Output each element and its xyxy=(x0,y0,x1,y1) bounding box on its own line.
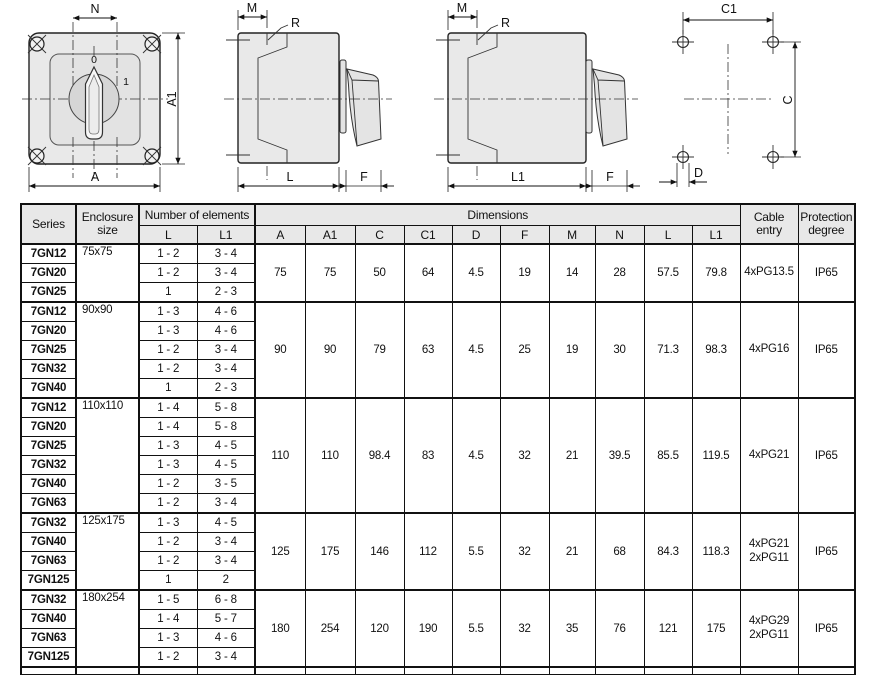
cell-elements-l1: 4 - 6 xyxy=(197,302,255,322)
cell-dim-d: 5.5 xyxy=(452,590,500,667)
cell-protection-degree: IP65 xyxy=(798,244,855,302)
radius-label-r: R xyxy=(501,16,510,30)
cell-dim-c1: 64 xyxy=(404,244,452,302)
cell-elements-l: 1 - 5 xyxy=(139,590,197,610)
cell-elements-l: 1 - 4 xyxy=(139,398,197,418)
cell-elements-l: 1 - 2 xyxy=(139,244,197,264)
cell-dim-a: 90 xyxy=(255,302,305,398)
col-header-dim-m: M xyxy=(549,226,595,245)
cell-series: 7GN63 xyxy=(21,494,76,514)
col-header-dim-c: C xyxy=(355,226,404,245)
datasheet-page: 0 1 N A1 A M R L xyxy=(0,0,874,675)
cell-elements-l: 1 - 3 xyxy=(139,302,197,322)
col-header-dim-c1: C1 xyxy=(404,226,452,245)
cell-dim-a: 125 xyxy=(255,513,305,590)
cell-series: 7GN32 xyxy=(21,456,76,475)
cell-elements-l1: 2 xyxy=(197,571,255,591)
screw-icon xyxy=(28,35,46,53)
cell-dim-m: 14 xyxy=(549,244,595,302)
dim-label-d: D xyxy=(694,166,703,180)
cell-enclosure-size: 75x75 xyxy=(76,244,139,302)
cell-dim-l1: 119.5 xyxy=(692,398,740,513)
cell-cable-entry: 4xPG21 xyxy=(740,398,798,513)
side-view-l1-drawing: M R L1 F xyxy=(434,1,640,192)
dim-label-a: A xyxy=(91,170,100,184)
cell-dim-c: 50 xyxy=(355,244,404,302)
cell-series: 7GN32 xyxy=(21,360,76,379)
dim-label-m: M xyxy=(457,1,467,15)
cell-protection-degree: IP65 xyxy=(798,513,855,590)
table-cutoff-row xyxy=(21,667,855,675)
col-header-series: Series xyxy=(21,204,76,244)
cell-dim-f: 25 xyxy=(500,302,549,398)
cell-series: 7GN25 xyxy=(21,283,76,303)
cell-dim-d: 4.5 xyxy=(452,398,500,513)
cell-dim-f: 32 xyxy=(500,590,549,667)
cell-elements-l: 1 - 2 xyxy=(139,552,197,571)
cell-dim-a1: 254 xyxy=(305,590,355,667)
cell-dim-n: 39.5 xyxy=(595,398,644,513)
dim-label-n: N xyxy=(90,2,99,16)
cell-elements-l1: 3 - 5 xyxy=(197,475,255,494)
dim-label-l1: L1 xyxy=(511,170,525,184)
cell-dim-a1: 175 xyxy=(305,513,355,590)
cell-dim-l1: 98.3 xyxy=(692,302,740,398)
dim-label-c: C xyxy=(781,95,795,104)
cell-series: 7GN32 xyxy=(21,513,76,533)
dimensions-table: Series Enclosure size Number of elements… xyxy=(20,203,856,675)
cell-dim-l: 84.3 xyxy=(644,513,692,590)
cell-dim-a: 180 xyxy=(255,590,305,667)
cell-elements-l1: 4 - 5 xyxy=(197,437,255,456)
cell-cable-entry: 4xPG16 xyxy=(740,302,798,398)
table-row: 7GN1275x751 - 23 - 4757550644.519142857.… xyxy=(21,244,855,264)
cell-elements-l1: 5 - 8 xyxy=(197,418,255,437)
cell-dim-a1: 90 xyxy=(305,302,355,398)
cell-elements-l: 1 - 2 xyxy=(139,360,197,379)
cell-dim-a: 110 xyxy=(255,398,305,513)
col-header-dim-a: A xyxy=(255,226,305,245)
cell-series: 7GN25 xyxy=(21,341,76,360)
cell-cutoff xyxy=(740,667,798,675)
cell-dim-n: 68 xyxy=(595,513,644,590)
cell-cutoff xyxy=(76,667,139,675)
cell-dim-n: 30 xyxy=(595,302,644,398)
dim-label-l: L xyxy=(287,170,294,184)
col-header-dim-d: D xyxy=(452,226,500,245)
cell-elements-l1: 3 - 4 xyxy=(197,552,255,571)
table-header: Series Enclosure size Number of elements… xyxy=(21,204,855,244)
cell-dim-d: 4.5 xyxy=(452,302,500,398)
cell-series: 7GN20 xyxy=(21,418,76,437)
technical-drawings: 0 1 N A1 A M R L xyxy=(0,0,874,203)
mounting-holes-drawing: C1 C D xyxy=(659,2,801,187)
col-header-dim-n: N xyxy=(595,226,644,245)
cell-elements-l1: 2 - 3 xyxy=(197,379,255,399)
radius-label-r: R xyxy=(291,16,300,30)
cell-elements-l1: 3 - 4 xyxy=(197,360,255,379)
cell-protection-degree: IP65 xyxy=(798,590,855,667)
cell-series: 7GN125 xyxy=(21,571,76,591)
cell-enclosure-size: 90x90 xyxy=(76,302,139,398)
cell-dim-m: 21 xyxy=(549,398,595,513)
cell-dim-l1: 118.3 xyxy=(692,513,740,590)
cell-dim-c1: 63 xyxy=(404,302,452,398)
cell-dim-l: 121 xyxy=(644,590,692,667)
cell-enclosure-size: 125x175 xyxy=(76,513,139,590)
side-view-l-drawing: M R L F xyxy=(224,1,394,192)
dim-label-m: M xyxy=(247,1,257,15)
screw-icon xyxy=(28,147,46,165)
cell-dim-n: 76 xyxy=(595,590,644,667)
cell-elements-l: 1 - 2 xyxy=(139,648,197,668)
dim-label-f: F xyxy=(606,170,614,184)
cell-dim-c: 98.4 xyxy=(355,398,404,513)
cell-elements-l1: 3 - 4 xyxy=(197,533,255,552)
cell-elements-l: 1 - 3 xyxy=(139,437,197,456)
col-header-dim-l1: L1 xyxy=(692,226,740,245)
cell-cable-entry: 4xPG29 2xPG11 xyxy=(740,590,798,667)
knob-position-1-label: 1 xyxy=(123,76,129,88)
cell-series: 7GN32 xyxy=(21,590,76,610)
cell-cutoff xyxy=(355,667,404,675)
cell-elements-l1: 4 - 6 xyxy=(197,322,255,341)
cell-enclosure-size: 110x110 xyxy=(76,398,139,513)
cell-series: 7GN12 xyxy=(21,302,76,322)
cell-enclosure-size: 180x254 xyxy=(76,590,139,667)
cell-cutoff xyxy=(595,667,644,675)
cell-series: 7GN25 xyxy=(21,437,76,456)
cell-cutoff xyxy=(798,667,855,675)
screw-icon xyxy=(143,147,161,165)
cell-elements-l: 1 xyxy=(139,379,197,399)
cell-elements-l1: 5 - 8 xyxy=(197,398,255,418)
cell-dim-l1: 79.8 xyxy=(692,244,740,302)
col-header-dim-f: F xyxy=(500,226,549,245)
cell-cable-entry: 4xPG13.5 xyxy=(740,244,798,302)
cell-dim-m: 19 xyxy=(549,302,595,398)
cell-elements-l1: 3 - 4 xyxy=(197,648,255,668)
cell-series: 7GN40 xyxy=(21,533,76,552)
cell-elements-l1: 5 - 7 xyxy=(197,610,255,629)
cell-dim-a1: 75 xyxy=(305,244,355,302)
cell-dim-m: 21 xyxy=(549,513,595,590)
cell-elements-l: 1 - 2 xyxy=(139,341,197,360)
cell-elements-l1: 4 - 6 xyxy=(197,629,255,648)
cell-dim-m: 35 xyxy=(549,590,595,667)
cell-elements-l1: 3 - 4 xyxy=(197,494,255,514)
cell-elements-l1: 3 - 4 xyxy=(197,244,255,264)
cell-elements-l: 1 - 2 xyxy=(139,475,197,494)
cell-dim-c: 146 xyxy=(355,513,404,590)
cell-dim-c1: 83 xyxy=(404,398,452,513)
cell-dim-a: 75 xyxy=(255,244,305,302)
cell-elements-l: 1 - 2 xyxy=(139,494,197,514)
col-header-number-of-elements: Number of elements xyxy=(139,204,255,226)
col-header-l: L xyxy=(139,226,197,245)
cell-elements-l: 1 - 4 xyxy=(139,418,197,437)
front-view-drawing: 0 1 N A1 A xyxy=(22,2,185,192)
cell-cutoff xyxy=(500,667,549,675)
col-header-protection-degree: Protection degree xyxy=(798,204,855,244)
cell-series: 7GN40 xyxy=(21,379,76,399)
cell-elements-l: 1 - 3 xyxy=(139,629,197,648)
knob-position-0-label: 0 xyxy=(91,54,97,66)
cell-elements-l: 1 - 3 xyxy=(139,322,197,341)
cell-dim-c: 79 xyxy=(355,302,404,398)
cell-dim-c1: 190 xyxy=(404,590,452,667)
cell-elements-l1: 6 - 8 xyxy=(197,590,255,610)
cell-protection-degree: IP65 xyxy=(798,302,855,398)
cell-elements-l: 1 - 3 xyxy=(139,456,197,475)
cell-dim-c1: 112 xyxy=(404,513,452,590)
cell-cutoff xyxy=(197,667,255,675)
cell-dim-f: 32 xyxy=(500,513,549,590)
cell-dim-d: 5.5 xyxy=(452,513,500,590)
cell-cutoff xyxy=(644,667,692,675)
cell-elements-l: 1 xyxy=(139,283,197,303)
table-row: 7GN32180x2541 - 56 - 81802541201905.5323… xyxy=(21,590,855,610)
cell-dim-l: 71.3 xyxy=(644,302,692,398)
cell-dim-f: 32 xyxy=(500,398,549,513)
cell-series: 7GN12 xyxy=(21,398,76,418)
cell-elements-l1: 4 - 5 xyxy=(197,513,255,533)
screw-icon xyxy=(143,35,161,53)
cell-elements-l: 1 - 2 xyxy=(139,533,197,552)
cell-elements-l1: 3 - 4 xyxy=(197,341,255,360)
cell-dim-l: 57.5 xyxy=(644,244,692,302)
col-header-dim-a1: A1 xyxy=(305,226,355,245)
cell-elements-l1: 3 - 4 xyxy=(197,264,255,283)
cell-cutoff xyxy=(139,667,197,675)
cell-series: 7GN63 xyxy=(21,552,76,571)
cell-dim-d: 4.5 xyxy=(452,244,500,302)
cell-cutoff xyxy=(21,667,76,675)
col-header-dim-l: L xyxy=(644,226,692,245)
cell-cutoff xyxy=(404,667,452,675)
cell-series: 7GN20 xyxy=(21,322,76,341)
dim-label-c1: C1 xyxy=(721,2,737,16)
table-row: 7GN12110x1101 - 45 - 811011098.4834.5322… xyxy=(21,398,855,418)
cell-dim-a1: 110 xyxy=(305,398,355,513)
cell-dim-l: 85.5 xyxy=(644,398,692,513)
cell-protection-degree: IP65 xyxy=(798,398,855,513)
cell-dim-c: 120 xyxy=(355,590,404,667)
col-header-cable-entry: Cable entry xyxy=(740,204,798,244)
cell-elements-l1: 4 - 5 xyxy=(197,456,255,475)
cell-elements-l: 1 - 2 xyxy=(139,264,197,283)
cell-cable-entry: 4xPG21 2xPG11 xyxy=(740,513,798,590)
col-header-l1: L1 xyxy=(197,226,255,245)
cell-elements-l: 1 - 3 xyxy=(139,513,197,533)
col-header-dimensions: Dimensions xyxy=(255,204,740,226)
cell-elements-l1: 2 - 3 xyxy=(197,283,255,303)
cell-dim-f: 19 xyxy=(500,244,549,302)
cell-elements-l: 1 - 4 xyxy=(139,610,197,629)
drill-hole-icon xyxy=(672,145,694,169)
cell-dim-n: 28 xyxy=(595,244,644,302)
cell-cutoff xyxy=(692,667,740,675)
cell-cutoff xyxy=(305,667,355,675)
cell-series: 7GN12 xyxy=(21,244,76,264)
table-body: 7GN1275x751 - 23 - 4757550644.519142857.… xyxy=(21,244,855,675)
drill-hole-icon xyxy=(762,145,784,169)
cell-series: 7GN125 xyxy=(21,648,76,668)
dim-label-a1: A1 xyxy=(165,91,179,106)
col-header-enclosure-size: Enclosure size xyxy=(76,204,139,244)
table-row: 7GN32125x1751 - 34 - 51251751461125.5322… xyxy=(21,513,855,533)
cell-dim-l1: 175 xyxy=(692,590,740,667)
table-row: 7GN1290x901 - 34 - 6909079634.525193071.… xyxy=(21,302,855,322)
dim-label-f: F xyxy=(360,170,368,184)
cell-cutoff xyxy=(452,667,500,675)
cell-cutoff xyxy=(549,667,595,675)
cell-cutoff xyxy=(255,667,305,675)
cell-series: 7GN40 xyxy=(21,475,76,494)
cell-series: 7GN20 xyxy=(21,264,76,283)
cell-series: 7GN40 xyxy=(21,610,76,629)
cell-series: 7GN63 xyxy=(21,629,76,648)
cell-elements-l: 1 xyxy=(139,571,197,591)
